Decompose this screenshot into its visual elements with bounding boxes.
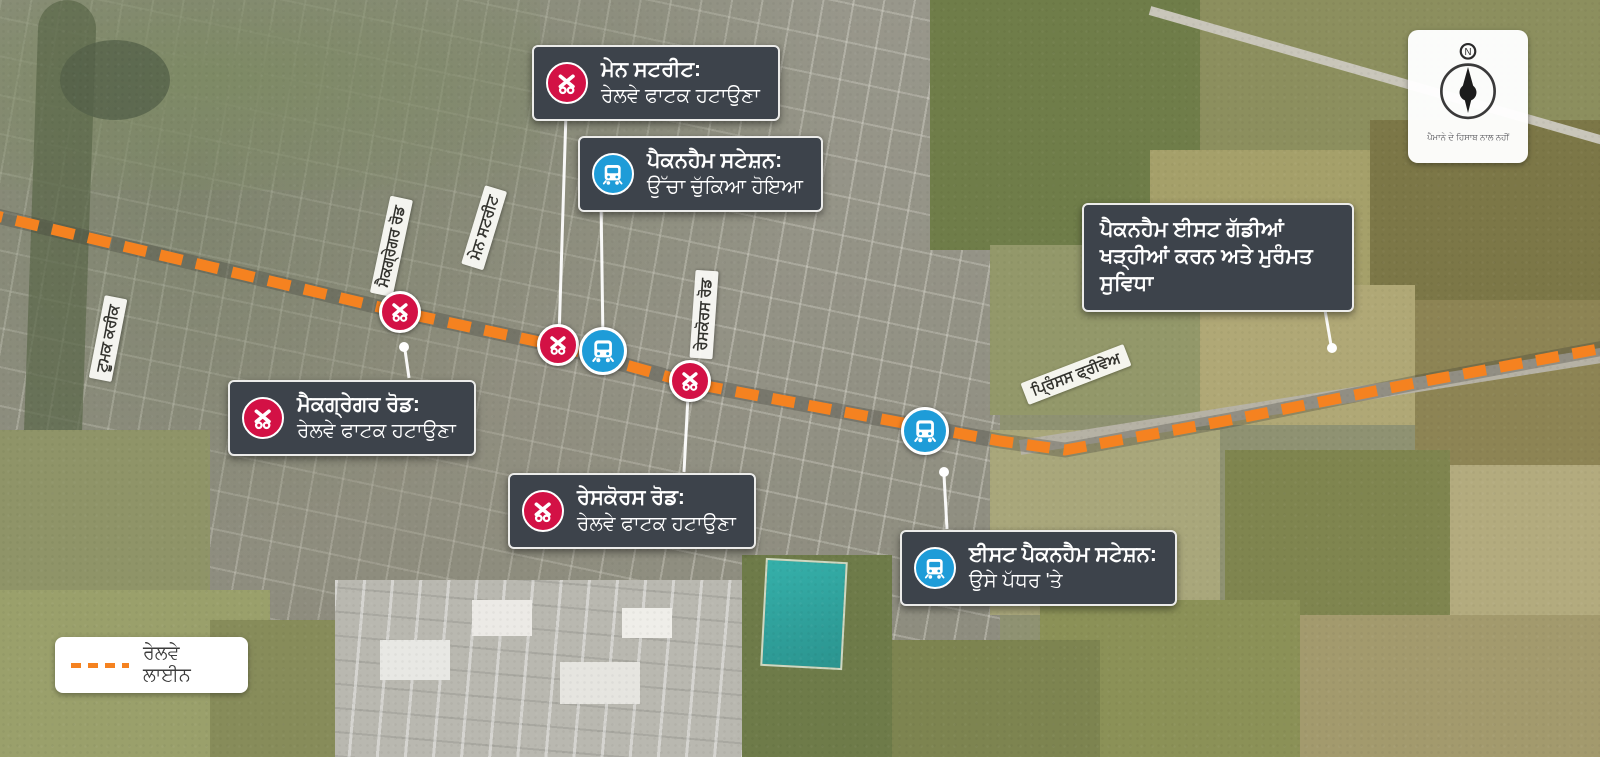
- level-crossing-icon: [522, 490, 564, 532]
- compass-rose: N ਪੈਮਾਨੇ ਦੇ ਹਿਸਾਬ ਨਾਲ ਨਹੀਂ: [1408, 30, 1528, 163]
- train-icon: [588, 336, 618, 366]
- callout-title: ਪੈਕਨਹੈਮ ਸਟੇਸ਼ਨ:: [647, 148, 803, 175]
- station-marker-east-pakenham: [901, 407, 949, 455]
- callout-text: ਪੈਕਨਹੈਮ ਈਸਟ ਗੱਡੀਆਂ ਖੜ੍ਹੀਆਂ ਕਰਨ ਅਤੇ ਮੁਰੰਮ…: [1100, 217, 1336, 298]
- level-crossing-icon: [387, 299, 413, 325]
- callout-title: ਈਸਟ ਪੈਕਨਹੈਮ ਸਟੇਸ਼ਨ:: [969, 542, 1157, 569]
- compass-icon: N: [1429, 38, 1507, 130]
- callout-pakenham-east-facility: ਪੈਕਨਹੈਮ ਈਸਟ ਗੱਡੀਆਂ ਖੜ੍ਹੀਆਂ ਕਰਨ ਅਤੇ ਮੁਰੰਮ…: [1082, 203, 1354, 312]
- leader-main-street: [559, 113, 566, 338]
- level-crossing-icon: [546, 62, 588, 104]
- level-crossing-icon: [677, 368, 703, 394]
- road-label-text: ਰੇਸਕੋਰਸ ਰੋਡ: [693, 278, 715, 351]
- compass-north-label: N: [1465, 47, 1472, 58]
- leader-pakenham-station: [601, 200, 603, 342]
- callout-title: ਮੈਕਗ੍ਰੇਗਰ ਰੋਡ:: [297, 392, 456, 419]
- level-crossing-icon: [242, 397, 284, 439]
- callout-pakenham-station: ਪੈਕਨਹੈਮ ਸਟੇਸ਼ਨ: ਉੱਚਾ ਚੁੱਕਿਆ ਹੋਇਆ: [578, 136, 823, 212]
- callout-mcgregor-road: ਮੈਕਗ੍ਰੇਗਰ ਰੋਡ: ਰੇਲਵੇ ਫਾਟਕ ਹਟਾਉਣਾ: [228, 380, 476, 456]
- callout-text: ਰੇਸਕੋਰਸ ਰੋਡ: ਰੇਲਵੇ ਫਾਟਕ ਹਟਾਉਣਾ: [577, 485, 736, 537]
- callout-subtitle: ਉਸੇ ਪੱਧਰ 'ਤੇ: [969, 569, 1157, 595]
- legend-railway-line: ਰੇਲਵੇ ਲਾਈਨ: [55, 637, 248, 693]
- level-crossing-marker-mcgregor: [379, 291, 421, 333]
- station-marker-pakenham: [579, 327, 627, 375]
- callout-title: ਪੈਕਨਹੈਮ ਈਸਟ ਗੱਡੀਆਂ ਖੜ੍ਹੀਆਂ ਕਰਨ ਅਤੇ ਮੁਰੰਮ…: [1100, 217, 1336, 298]
- railway-dash-swatch: [71, 663, 129, 668]
- callout-text: ਪੈਕਨਹੈਮ ਸਟੇਸ਼ਨ: ਉੱਚਾ ਚੁੱਕਿਆ ਹੋਇਆ: [647, 148, 803, 200]
- level-crossing-icon: [545, 332, 571, 358]
- train-icon: [592, 153, 634, 195]
- callout-east-pakenham-station: ਈਸਟ ਪੈਕਨਹੈਮ ਸਟੇਸ਼ਨ: ਉਸੇ ਪੱਧਰ 'ਤੇ: [900, 530, 1177, 606]
- callout-title: ਮੇਨ ਸਟਰੀਟ:: [601, 57, 760, 84]
- legend-label: ਰੇਲਵੇ ਲਾਈਨ: [143, 643, 232, 687]
- callout-subtitle: ਉੱਚਾ ਚੁੱਕਿਆ ਹੋਇਆ: [647, 175, 803, 201]
- satellite-map-canvas: ਮੈਕਗ੍ਰੇਗਰ ਰੋਡ ਮੇਨ ਸਟਰੀਟ ਰੇਸਕੋਰਸ ਰੋਡ ਟੂਮਕ…: [0, 0, 1600, 757]
- callout-main-street: ਮੇਨ ਸਟਰੀਟ: ਰੇਲਵੇ ਫਾਟਕ ਹਟਾਉਣਾ: [532, 45, 780, 121]
- callout-text: ਮੈਕਗ੍ਰੇਗਰ ਰੋਡ: ਰੇਲਵੇ ਫਾਟਕ ਹਟਾਉਣਾ: [297, 392, 456, 444]
- leader-east-pakenham: [944, 475, 947, 529]
- train-icon: [914, 547, 956, 589]
- callout-subtitle: ਰੇਲਵੇ ਫਾਟਕ ਹਟਾਉਣਾ: [297, 419, 456, 445]
- callout-subtitle: ਰੇਲਵੇ ਫਾਟਕ ਹਟਾਉਣਾ: [577, 512, 736, 538]
- compass-note: ਪੈਮਾਨੇ ਦੇ ਹਿਸਾਬ ਨਾਲ ਨਹੀਂ: [1427, 132, 1509, 143]
- level-crossing-marker-racecourse: [669, 360, 711, 402]
- leader-racecourse: [684, 396, 688, 472]
- callout-text: ਈਸਟ ਪੈਕਨਹੈਮ ਸਟੇਸ਼ਨ: ਉਸੇ ਪੱਧਰ 'ਤੇ: [969, 542, 1157, 594]
- callout-title: ਰੇਸਕੋਰਸ ਰੋਡ:: [577, 485, 736, 512]
- callout-subtitle: ਰੇਲਵੇ ਫਾਟਕ ਹਟਾਉਣਾ: [601, 84, 760, 110]
- train-icon: [910, 416, 940, 446]
- leader-mcgregor: [405, 350, 409, 378]
- callout-racecourse-road: ਰੇਸਕੋਰਸ ਰੋਡ: ਰੇਲਵੇ ਫਾਟਕ ਹਟਾਉਣਾ: [508, 473, 756, 549]
- callout-text: ਮੇਨ ਸਟਰੀਟ: ਰੇਲਵੇ ਫਾਟਕ ਹਟਾਉਣਾ: [601, 57, 760, 109]
- level-crossing-marker-main-street: [537, 324, 579, 366]
- callout-leader-lines: [405, 113, 1331, 529]
